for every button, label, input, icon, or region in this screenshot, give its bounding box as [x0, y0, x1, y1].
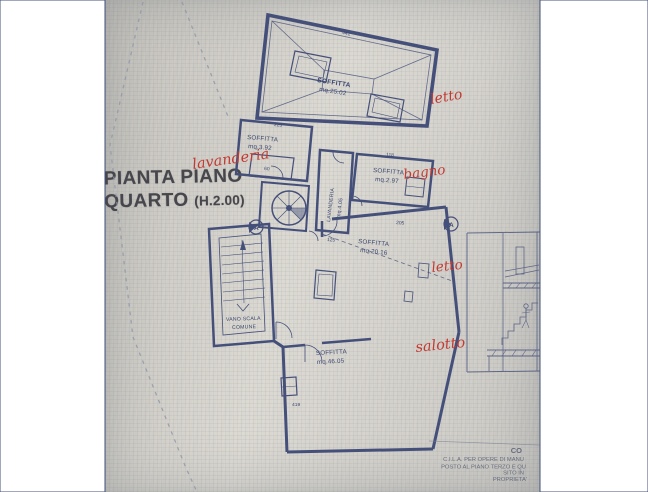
room-label: SOFFITTA	[247, 134, 279, 144]
dim-60: 60	[264, 166, 270, 172]
room-label: LAVANDERIA	[326, 187, 336, 222]
note-lavanderia: lavanderia	[191, 146, 270, 173]
room-area: mq.46.05	[317, 358, 345, 366]
svg-text:A: A	[449, 222, 454, 229]
dim-419: 419	[292, 402, 300, 408]
note-letto-mid: letto	[431, 257, 464, 276]
dim-125: 125	[327, 237, 336, 244]
svg-text:A: A	[254, 225, 259, 232]
room-label: SOFFITTA	[316, 348, 348, 357]
room-label: VANO SCALA	[226, 316, 261, 323]
title-block-line4: SITO IN	[503, 471, 524, 477]
dim-205: 205	[396, 220, 405, 227]
room-area: mq.2.97	[375, 176, 400, 185]
title-block-line2: C.I.L.A. PER OPERE DI MANU	[443, 457, 524, 463]
stair-section-inset	[467, 232, 540, 372]
dim-118: 118	[386, 152, 395, 159]
room-area: mq.20.16	[360, 247, 388, 257]
person-figure	[522, 304, 530, 328]
room-attic-main: 441 SOFFITTA mq.25.02	[257, 15, 437, 126]
title-block-line1: CO	[511, 446, 522, 455]
room-area: mq.4.05	[336, 198, 344, 219]
stairwell-vano-scala: VANO SCALA COMUNE	[209, 224, 292, 346]
note-bagno: bagno	[403, 162, 447, 183]
floor-plan-drawing: 441 SOFFITTA mq.25.02 SOFFITTA mq.3.92 2…	[0, 0, 648, 492]
spiral-staircase	[259, 182, 318, 241]
note-salotto: salotto	[415, 335, 467, 356]
dim-223: 223	[274, 122, 283, 129]
title-block-line5: PROPRIETA'	[493, 477, 527, 483]
room-label2: COMUNE	[232, 324, 257, 331]
screenshot-root: PIANTA PIANO QUARTO (H.2.00)	[0, 0, 648, 492]
title-block: CO C.I.L.A. PER OPERE DI MANU POSTO AL P…	[429, 441, 540, 483]
note-letto-top: letto	[429, 87, 464, 108]
boundary-dashed-lines	[110, 2, 229, 492]
